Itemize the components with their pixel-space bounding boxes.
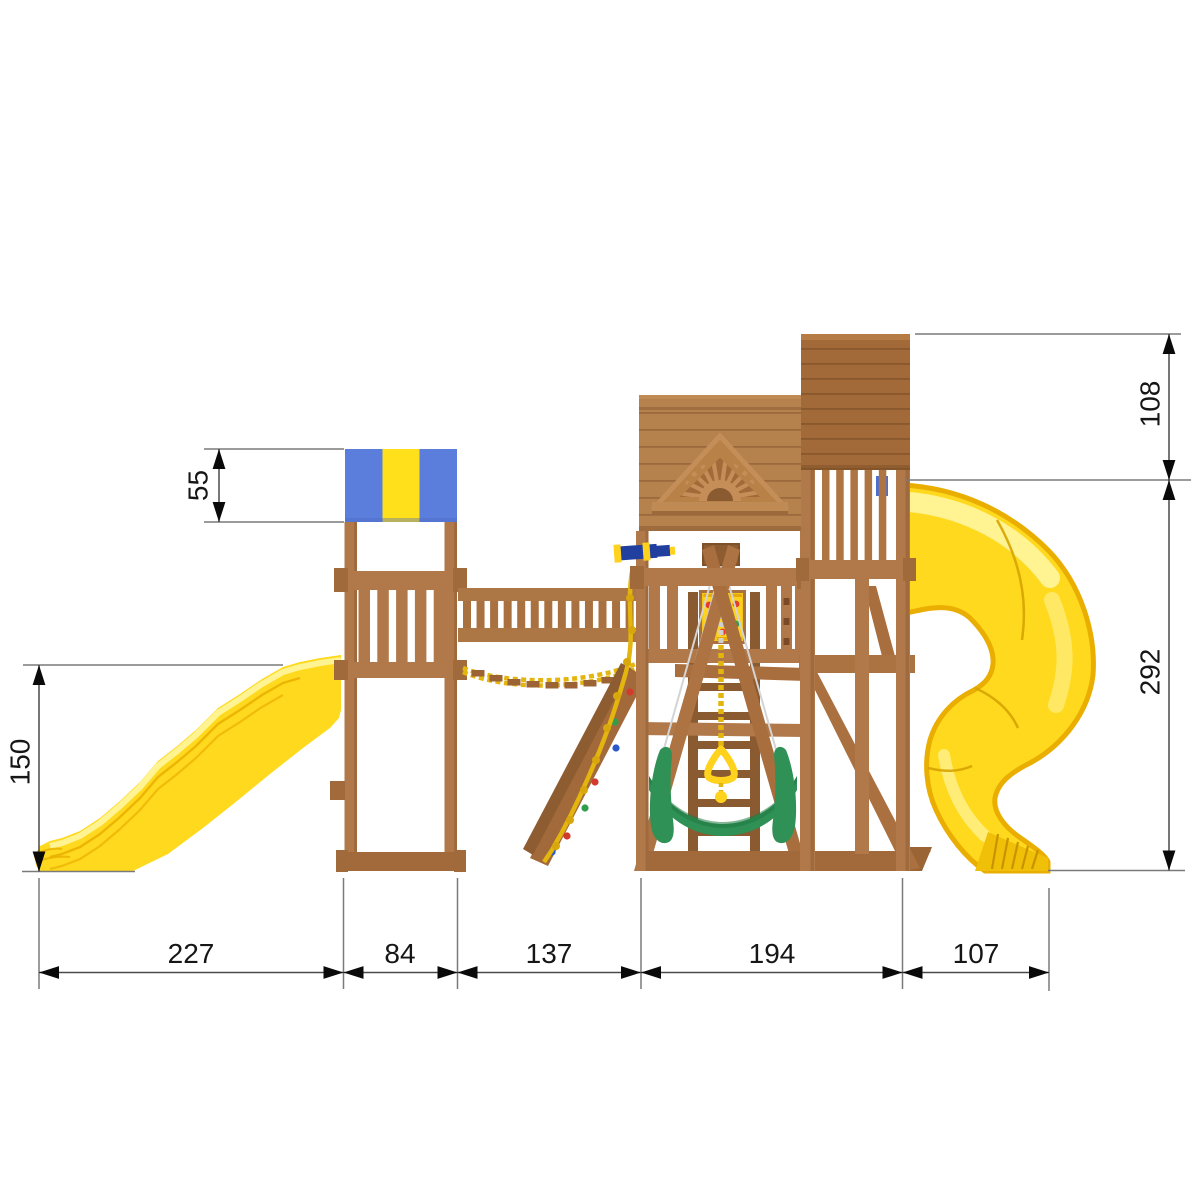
svg-text:137: 137 <box>526 938 573 969</box>
svg-text:194: 194 <box>749 938 796 969</box>
svg-text:108: 108 <box>1135 381 1166 428</box>
svg-text:55: 55 <box>183 470 214 501</box>
svg-text:84: 84 <box>384 938 415 969</box>
svg-text:227: 227 <box>168 938 215 969</box>
svg-text:292: 292 <box>1135 649 1166 696</box>
svg-text:107: 107 <box>953 938 1000 969</box>
svg-text:150: 150 <box>5 739 36 786</box>
